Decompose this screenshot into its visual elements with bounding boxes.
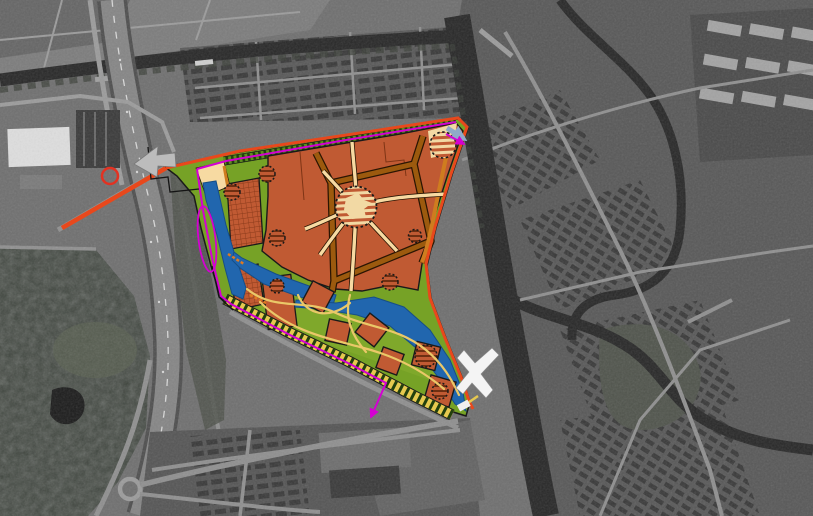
tree-plaza-circle — [259, 166, 275, 182]
map-stage: Grayscale aerial photograph of a Dutch t… — [0, 0, 813, 516]
tree-plaza-circle — [382, 274, 398, 290]
tree-plaza-circle — [409, 230, 422, 243]
aerial-masterplan-map: Grayscale aerial photograph of a Dutch t… — [0, 0, 813, 516]
tree-plaza-circle — [224, 184, 240, 200]
tree-plaza-circle — [270, 279, 284, 293]
central-plaza-circle — [336, 187, 377, 228]
tree-plaza-circle — [269, 230, 285, 246]
